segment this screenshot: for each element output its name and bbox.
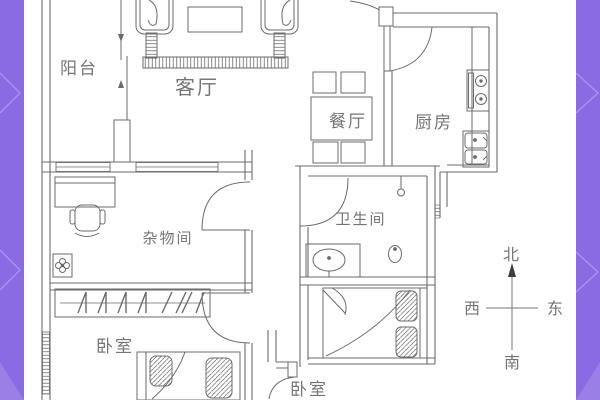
window-balcony-sill (56, 163, 110, 172)
sofa-hatch-left (146, 33, 157, 58)
room-label-storage-room: 杂物间 (142, 229, 193, 247)
compass-south-label: 南 (504, 353, 520, 372)
sofa-hatch-right (274, 33, 285, 58)
pillow (396, 327, 417, 357)
room-label-dining-room: 餐厅 (329, 112, 367, 132)
window-living-sill (136, 163, 218, 172)
compass-east-label: 东 (547, 299, 563, 318)
bedroom-bottom-door-jamb (288, 362, 297, 377)
sliding-door-post (114, 120, 130, 162)
floorplan-svg: 北 西 东 南 阳台 客厅 餐厅 厨房 杂物间 卫生间 卧室 卧室 (0, 0, 600, 400)
purple-band-right (576, 0, 600, 400)
room-label-bathroom: 卫生间 (335, 210, 386, 228)
room-label-balcony: 阳台 (60, 59, 98, 79)
sofa-hatch-long (143, 57, 288, 68)
compass-north-label: 北 (503, 245, 519, 264)
entrance-door-jamb (379, 7, 393, 26)
kitchen-door-leaf (384, 26, 390, 71)
vent-hatch (435, 205, 440, 218)
room-label-living-room: 客厅 (175, 75, 219, 99)
room-label-bedroom-bottom: 卧室 (290, 380, 328, 400)
purple-band-left (0, 0, 24, 400)
pillow (396, 291, 417, 321)
compass-west-label: 西 (464, 299, 480, 318)
armchair-left (136, 0, 173, 34)
window-bedroom-left (43, 332, 50, 394)
armchair-right (261, 0, 298, 34)
room-label-kitchen: 厨房 (415, 113, 453, 133)
page-root: 北 西 东 南 阳台 客厅 餐厅 厨房 杂物间 卫生间 卧室 卧室 (0, 0, 600, 400)
room-label-bedroom-left: 卧室 (96, 337, 134, 357)
pillow (206, 358, 232, 398)
